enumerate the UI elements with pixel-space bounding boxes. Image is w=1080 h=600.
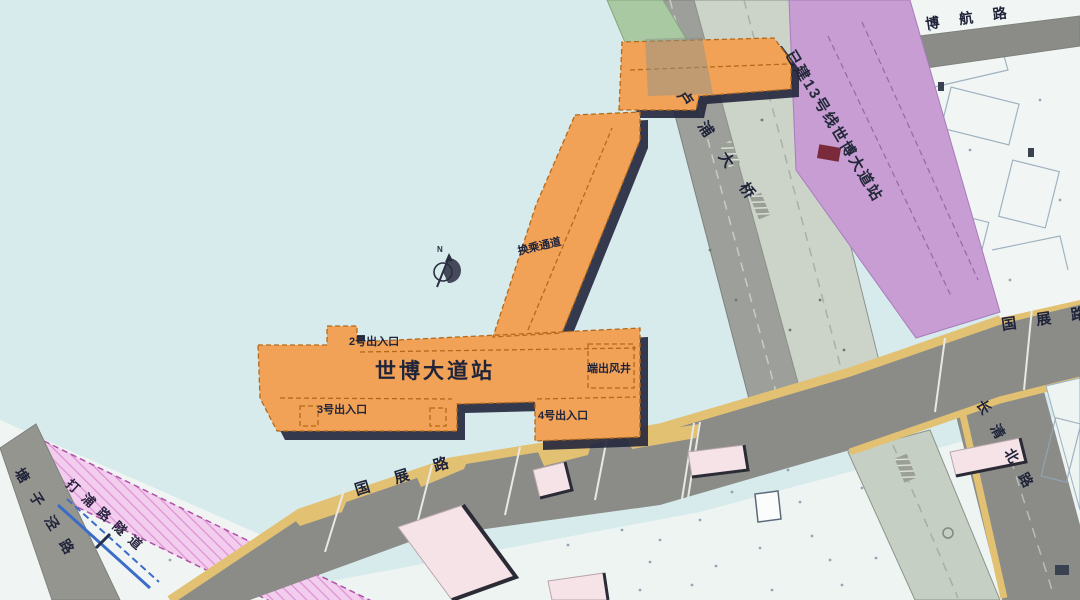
station-name-label: 世博大道站	[375, 355, 495, 385]
bridge-over-arm-overlay	[645, 37, 713, 96]
exit-2-label: 2号出入口	[349, 333, 399, 349]
exit-4-label: 4号出入口	[538, 407, 588, 423]
compass-north-label: N	[437, 245, 443, 254]
vent-shaft-label: 端出风井	[587, 360, 631, 376]
station-site-plan: N 世博大道站 2号出入口 3号出入口 4号出入口 端出风井 换乘通道 已建13…	[0, 0, 1080, 600]
site-plan-drawing: N	[0, 0, 1080, 600]
exit-3-label: 3号出入口	[317, 401, 367, 417]
